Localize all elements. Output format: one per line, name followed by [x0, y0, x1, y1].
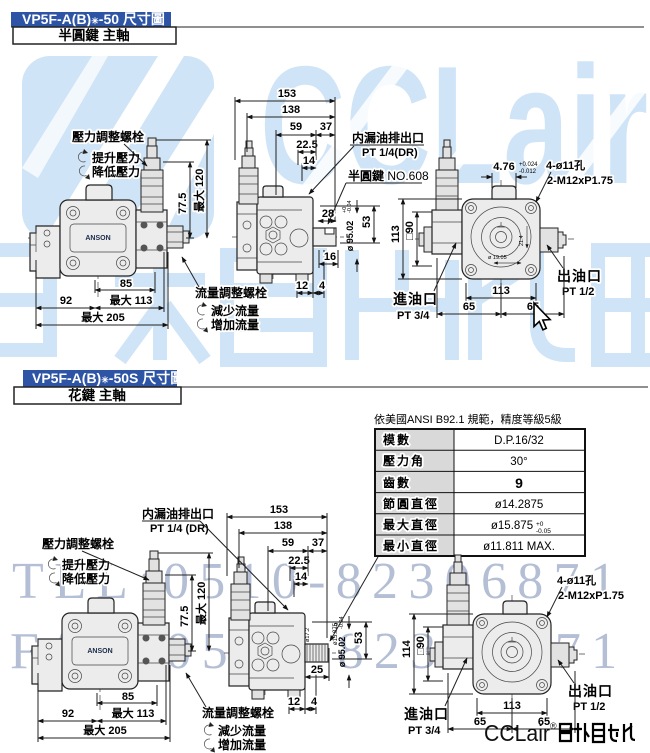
svg-text:D.P.16/32: D.P.16/32: [494, 435, 544, 447]
svg-text:壓力角: 壓力角: [383, 453, 425, 468]
svg-text:最大直徑: 最大直徑: [383, 517, 439, 532]
svg-text:4.76: 4.76: [493, 161, 514, 173]
svg-text:+0: +0: [536, 521, 544, 528]
svg-text:半圓鍵 NO.608: 半圓鍵 NO.608: [348, 168, 429, 183]
svg-text:PT 1/4 (DR): PT 1/4 (DR): [150, 523, 209, 535]
svg-text:114: 114: [401, 639, 413, 658]
svg-text:模數: 模數: [383, 432, 411, 447]
svg-text:CCLair: CCLair: [484, 720, 550, 746]
svg-text:9: 9: [515, 475, 523, 491]
svg-text:+0.024: +0.024: [519, 162, 538, 168]
svg-text:花鍵 主軸: 花鍵 主軸: [68, 387, 126, 403]
svg-text:VP5F-A(B)✳-50S 尺寸圖: VP5F-A(B)✳-50S 尺寸圖: [32, 370, 184, 386]
svg-text:依美國ANSI B92.1 規範，精度等級5級: 依美國ANSI B92.1 規範，精度等級5級: [374, 412, 562, 426]
svg-text:齒數: 齒數: [383, 475, 411, 490]
svg-text:ø15.875: ø15.875: [491, 520, 533, 532]
svg-text:半圓鍵 主軸: 半圓鍵 主軸: [58, 27, 129, 43]
svg-text:ø 19.05: ø 19.05: [488, 255, 507, 261]
svg-text:16: 16: [324, 251, 336, 263]
svg-text:-0.012: -0.012: [519, 169, 537, 175]
svg-text:®: ®: [550, 721, 557, 731]
svg-text:21.4: 21.4: [519, 235, 525, 246]
svg-text:内漏油排出口: 内漏油排出口: [352, 130, 424, 145]
svg-text:最小直徑: 最小直徑: [383, 538, 439, 553]
svg-text:PT 1/4(DR): PT 1/4(DR): [362, 147, 418, 159]
svg-text:-0.05: -0.05: [536, 528, 551, 535]
svg-text:ø17.2: ø17.2: [305, 628, 311, 642]
svg-text:25: 25: [311, 664, 323, 676]
svg-text:ø14.2875: ø14.2875: [495, 499, 544, 511]
svg-text:113: 113: [390, 225, 402, 243]
svg-text:ø11.811 MAX.: ø11.811 MAX.: [483, 541, 555, 553]
svg-text:節圓直徑: 節圓直徑: [383, 496, 439, 511]
svg-text:内漏油排出口: 内漏油排出口: [142, 506, 214, 521]
svg-text:30°: 30°: [510, 456, 527, 468]
